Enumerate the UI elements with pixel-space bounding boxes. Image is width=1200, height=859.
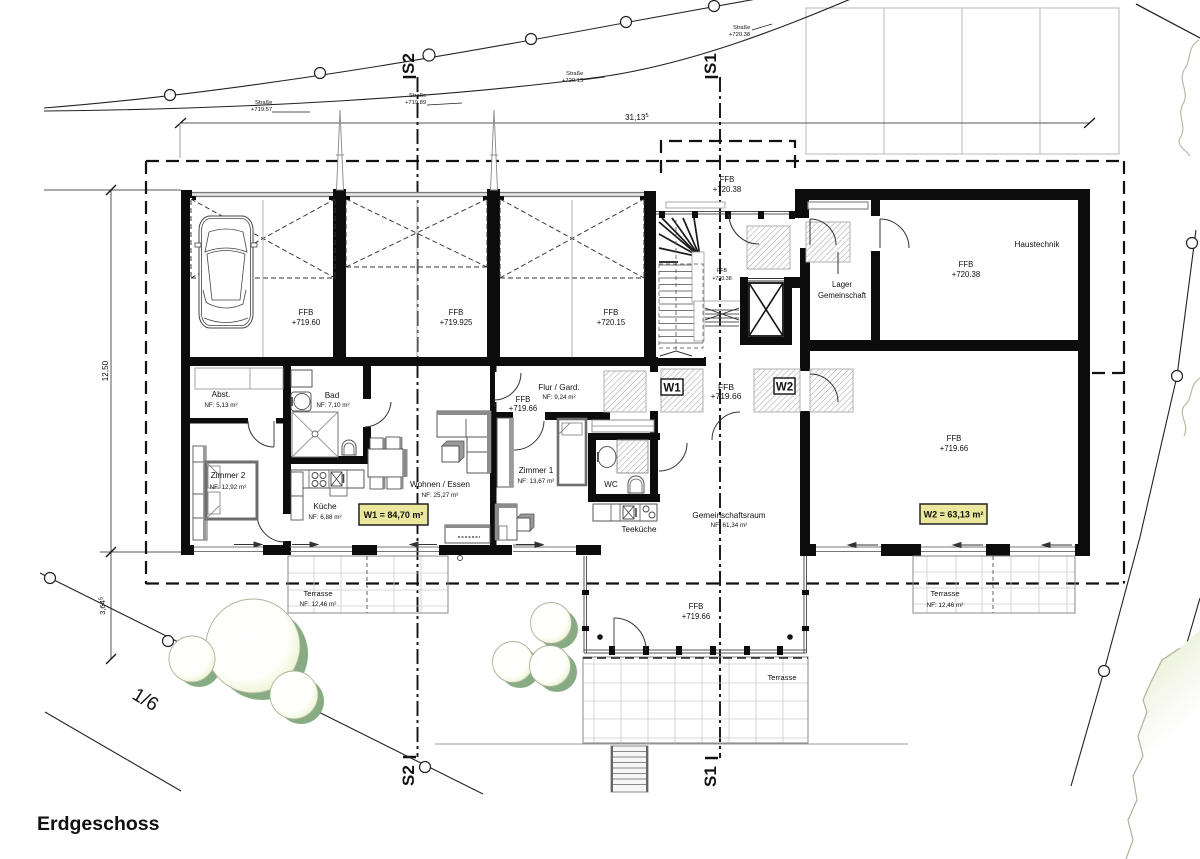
svg-text:+720.38: +720.38 bbox=[713, 185, 741, 194]
svg-text:NF: 25,27 m²: NF: 25,27 m² bbox=[422, 492, 459, 499]
svg-text:Terrasse: Terrasse bbox=[303, 589, 332, 598]
svg-text:Zimmer 2: Zimmer 2 bbox=[211, 471, 246, 480]
svg-text:Teeküche: Teeküche bbox=[621, 525, 656, 534]
svg-text:NF: 6,88 m²: NF: 6,88 m² bbox=[308, 514, 341, 521]
svg-text:+719.57: +719.57 bbox=[251, 107, 272, 113]
svg-text:NF: 12,46 m²: NF: 12,46 m² bbox=[300, 601, 337, 608]
svg-text:Terrasse: Terrasse bbox=[930, 589, 959, 598]
svg-text:NF: 12,46 m²: NF: 12,46 m² bbox=[927, 602, 964, 609]
svg-text:W1: W1 bbox=[663, 383, 681, 395]
svg-text:Lager: Lager bbox=[832, 280, 852, 289]
svg-text:S2: S2 bbox=[399, 765, 418, 786]
svg-text:FFB: FFB bbox=[516, 395, 531, 404]
svg-text:Straße: Straße bbox=[566, 71, 583, 77]
svg-text:Straße: Straße bbox=[733, 25, 750, 31]
svg-text:+719.66: +719.66 bbox=[682, 612, 710, 621]
svg-text:+719.925: +719.925 bbox=[440, 318, 473, 327]
svg-text:WC: WC bbox=[604, 480, 618, 489]
svg-text:FFB: FFB bbox=[299, 308, 314, 317]
svg-text:NF: 13,67 m²: NF: 13,67 m² bbox=[518, 478, 555, 485]
svg-text:Haustechnik: Haustechnik bbox=[1014, 240, 1060, 249]
svg-text:FFB: FFB bbox=[689, 602, 704, 611]
svg-text:12,50: 12,50 bbox=[101, 360, 110, 381]
svg-text:FFB: FFB bbox=[604, 308, 619, 317]
svg-text:+720.13: +720.13 bbox=[562, 78, 583, 84]
svg-text:+720.38: +720.38 bbox=[952, 270, 980, 279]
svg-text:S1: S1 bbox=[701, 766, 720, 787]
svg-text:FFB: FFB bbox=[947, 434, 962, 443]
svg-text:FFB: FFB bbox=[720, 175, 735, 184]
svg-text:+719.89: +719.89 bbox=[405, 100, 426, 106]
svg-text:Zimmer 1: Zimmer 1 bbox=[519, 466, 554, 475]
svg-text:NF: 12,92 m²: NF: 12,92 m² bbox=[210, 484, 247, 491]
svg-text:NF: 5,13 m²: NF: 5,13 m² bbox=[204, 402, 237, 409]
svg-text:FFB: FFB bbox=[717, 268, 727, 274]
svg-text:Gemeinschaftsraum: Gemeinschaftsraum bbox=[692, 511, 765, 520]
svg-text:S1: S1 bbox=[701, 53, 720, 74]
svg-text:NF: 7,10 m²: NF: 7,10 m² bbox=[316, 402, 349, 409]
svg-text:FFB: FFB bbox=[959, 260, 974, 269]
svg-text:31,135: 31,135 bbox=[625, 113, 649, 122]
svg-text:NF: 61,34 m²: NF: 61,34 m² bbox=[711, 522, 748, 529]
svg-text:+719.66: +719.66 bbox=[940, 444, 968, 453]
svg-text:Terrasse: Terrasse bbox=[767, 673, 796, 682]
svg-text:Küche: Küche bbox=[313, 502, 337, 511]
svg-text:Straße: Straße bbox=[255, 100, 272, 106]
svg-text:+720.38: +720.38 bbox=[712, 276, 731, 282]
svg-text:W2 = 63,13 m²: W2 = 63,13 m² bbox=[924, 510, 984, 520]
svg-text:W2: W2 bbox=[776, 382, 793, 394]
svg-text:NF: 9,24 m²: NF: 9,24 m² bbox=[542, 394, 575, 401]
svg-text:+719.66: +719.66 bbox=[509, 404, 537, 413]
svg-text:+720.38: +720.38 bbox=[729, 32, 750, 38]
svg-text:Bad: Bad bbox=[325, 391, 340, 400]
svg-text:Flur / Gard.: Flur / Gard. bbox=[538, 383, 579, 392]
svg-text:S2: S2 bbox=[399, 53, 418, 74]
svg-text:+719.66: +719.66 bbox=[711, 391, 742, 401]
svg-text:Erdgeschoss: Erdgeschoss bbox=[37, 813, 160, 835]
svg-text:W1 = 84,70 m²: W1 = 84,70 m² bbox=[364, 510, 424, 520]
svg-text:+719.60: +719.60 bbox=[292, 318, 321, 327]
svg-text:+720.15: +720.15 bbox=[597, 318, 626, 327]
svg-text:Wohnen / Essen: Wohnen / Essen bbox=[410, 480, 470, 489]
svg-text:FFB: FFB bbox=[449, 308, 464, 317]
svg-text:Gemeinschaft: Gemeinschaft bbox=[818, 291, 867, 300]
svg-text:Abst.: Abst. bbox=[212, 390, 231, 399]
